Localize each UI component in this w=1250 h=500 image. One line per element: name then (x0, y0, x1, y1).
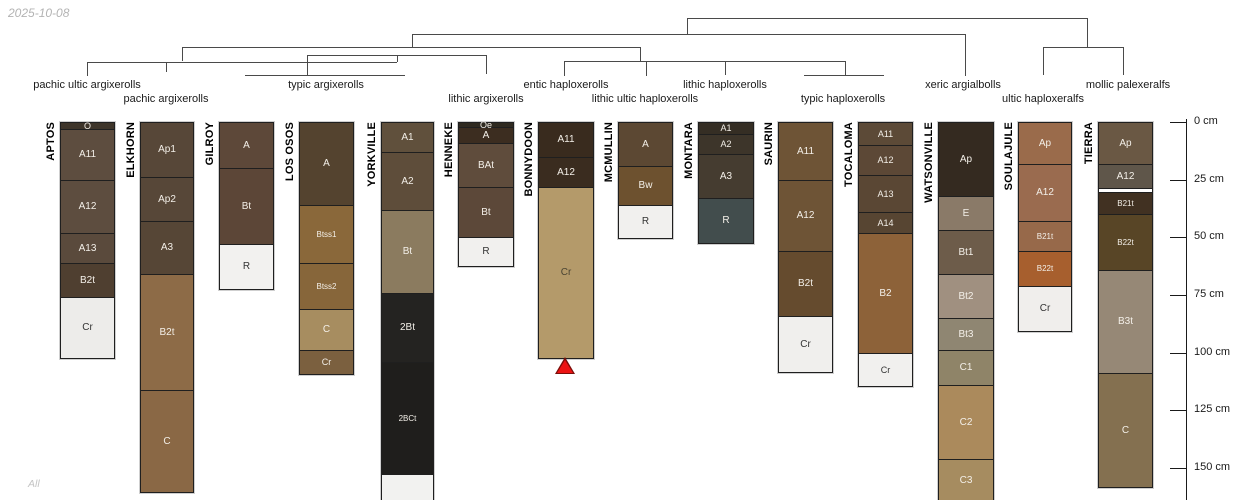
soil-column: OA11A12A13B2tCr (60, 122, 115, 359)
horizon-label: B22t (1037, 265, 1053, 273)
taxon-label: xeric argialbolls (925, 79, 1001, 91)
horizon-label: Ap2 (158, 195, 176, 205)
horizon-segment: B21t (1019, 222, 1071, 252)
soil-column: ABtR (219, 122, 274, 290)
soil-column-title: BONNYDOON (523, 122, 538, 242)
horizon-segment: A13 (859, 176, 912, 213)
soil-column-title: SOULAJULE (1003, 122, 1018, 242)
horizon-label: 2BCt (399, 415, 417, 423)
soil-column: A1A2Bt2Bt2BCt (381, 122, 434, 500)
horizon-segment: C2 (939, 386, 993, 460)
soil-column-title: MONTARA (683, 122, 698, 242)
dendrogram-line (87, 62, 88, 77)
horizon-segment: 2BCt (382, 363, 433, 475)
horizon-label: A3 (720, 172, 732, 182)
soil-column: ABwR (618, 122, 673, 239)
soil-column: ApA12B21tB22tCr (1018, 122, 1072, 332)
horizon-label: A12 (797, 211, 815, 221)
horizon-label: A (243, 141, 250, 151)
horizon-segment: Btss2 (300, 264, 353, 310)
depth-axis-tick (1170, 353, 1186, 354)
horizon-label: A11 (79, 150, 96, 160)
horizon-label: Cr (1040, 304, 1051, 314)
horizon-segment: Cr (300, 351, 353, 374)
dendrogram-line (564, 61, 565, 76)
horizon-segment: A3 (699, 155, 753, 199)
horizon-segment: A13 (61, 234, 114, 264)
horizon-segment: A12 (1019, 165, 1071, 222)
horizon-segment: C1 (939, 351, 993, 386)
horizon-label: A (483, 131, 490, 141)
horizon-label: A2 (720, 140, 731, 149)
horizon-segment: A (300, 123, 353, 206)
horizon-label: Cr (82, 323, 93, 333)
dendrogram-line (646, 61, 647, 76)
dendrogram-line (87, 62, 397, 63)
horizon-label: Bw (639, 181, 653, 191)
soil-column: A11A12Cr (538, 122, 594, 359)
horizon-label: Bt (403, 247, 412, 257)
horizon-segment: B22t (1019, 252, 1071, 287)
horizon-label: B2 (879, 289, 891, 299)
dendrogram-line (412, 34, 413, 48)
soil-column-title: WATSONVILLE (923, 122, 938, 242)
depth-axis-tick (1170, 468, 1186, 469)
dendrogram-line (412, 34, 965, 35)
horizon-segment: A14 (859, 213, 912, 234)
taxon-label: lithic ultic haploxerolls (592, 93, 698, 105)
soil-column: A1A2A3R (698, 122, 754, 244)
horizon-label: Ap (1039, 139, 1051, 149)
dendrogram-line (166, 62, 167, 73)
soil-column-title: TOCALOMA (843, 122, 858, 242)
horizon-segment: O (61, 123, 114, 130)
date-annotation: 2025-10-08 (8, 6, 69, 20)
taxon-label: pachic ultic argixerolls (33, 79, 141, 91)
horizon-label: A11 (878, 130, 893, 139)
dendrogram-line (486, 55, 487, 74)
horizon-label: B22t (1117, 239, 1133, 247)
depth-axis-tick-label: 125 cm (1194, 403, 1230, 415)
dendrogram-line (564, 61, 845, 62)
horizon-label: B2t (80, 276, 95, 286)
horizon-segment: Cr (779, 317, 832, 372)
horizon-label: A11 (557, 135, 574, 145)
horizon-segment: Bt (220, 169, 273, 245)
soil-column-title: YORKVILLE (366, 122, 381, 242)
horizon-label: Ap (960, 155, 972, 165)
horizon-segment: B22t (1099, 215, 1152, 271)
horizon-label: Bt3 (958, 330, 973, 340)
horizon-segment: R (459, 238, 513, 266)
horizon-segment: Ap (1019, 123, 1071, 165)
horizon-segment: B2t (61, 264, 114, 298)
horizon-label: C (1122, 426, 1129, 436)
horizon-segment: Bt3 (939, 319, 993, 351)
depth-axis-tick (1170, 122, 1186, 123)
depth-axis-tick-label: 50 cm (1194, 230, 1224, 242)
horizon-label: Cr (561, 268, 572, 278)
horizon-segment: A2 (699, 135, 753, 155)
horizon-segment: Bt1 (939, 231, 993, 275)
horizon-label: C (323, 325, 330, 335)
soil-column: ABtss1Btss2CCr (299, 122, 354, 375)
horizon-segment: A12 (539, 158, 593, 188)
horizon-segment: C3 (939, 460, 993, 500)
horizon-segment: C (300, 310, 353, 351)
horizon-label: Bt2 (958, 292, 973, 302)
taxon-label: typic argixerolls (288, 79, 364, 91)
horizon-label: A2 (401, 177, 413, 187)
horizon-segment: A12 (779, 181, 832, 252)
soil-column: A11A12A13A14B2Cr (858, 122, 913, 387)
horizon-segment: C (141, 391, 193, 492)
depth-axis-tick (1170, 180, 1186, 181)
horizon-label: BAt (478, 161, 494, 171)
horizon-segment: BAt (459, 144, 513, 188)
horizon-label: A3 (161, 243, 173, 253)
horizon-label: B2t (159, 328, 174, 338)
dendrogram-line (182, 47, 183, 61)
horizon-segment: Ap (939, 123, 993, 197)
horizon-label: C (163, 437, 170, 447)
dendrogram-line (1123, 47, 1124, 75)
soil-column-title: MCMULLIN (603, 122, 618, 242)
soil-column: ApA12B21tB22tB3tC (1098, 122, 1153, 488)
horizon-segment: A12 (1099, 165, 1152, 189)
horizon-label: E (963, 209, 970, 219)
horizon-segment: E (939, 197, 993, 231)
soil-column: ApEBt1Bt2Bt3C1C2C3 (938, 122, 994, 500)
taxon-label: ultic haploxeralfs (1002, 93, 1084, 105)
horizon-label: A (642, 140, 649, 150)
dendrogram-line (182, 47, 640, 48)
horizon-label: A12 (877, 156, 893, 165)
soil-column-title: TIERRA (1083, 122, 1098, 242)
horizon-segment: Cr (859, 354, 912, 386)
horizon-segment: Bt (382, 211, 433, 294)
horizon-label: A (323, 159, 330, 169)
horizon-segment: Ap1 (141, 123, 193, 178)
horizon-segment: R (220, 245, 273, 289)
depth-axis-tick (1170, 410, 1186, 411)
horizon-label: A12 (557, 168, 575, 178)
taxon-label: lithic haploxerolls (683, 79, 767, 91)
dendrogram-line (397, 55, 398, 62)
dendrogram-line (1087, 18, 1088, 47)
dendrogram-line (687, 18, 688, 34)
horizon-label: C1 (960, 363, 973, 373)
horizon-segment: R (699, 199, 753, 243)
soil-column-title: SAURIN (763, 122, 778, 242)
horizon-segment: A11 (859, 123, 912, 146)
horizon-segment: A1 (382, 123, 433, 153)
horizon-segment: B2t (779, 252, 832, 317)
horizon-segment: B21t (1099, 193, 1152, 215)
horizon-segment: Bt (459, 188, 513, 238)
dendrogram-line (845, 61, 846, 75)
horizon-segment: A3 (141, 222, 193, 275)
horizon-segment: A11 (779, 123, 832, 181)
dendrogram-line (725, 61, 726, 75)
horizon-label: A14 (877, 219, 893, 228)
horizon-label: A13 (877, 190, 893, 199)
horizon-label: B3t (1118, 317, 1133, 327)
horizon-segment: B2 (859, 234, 912, 354)
horizon-segment: R (619, 206, 672, 238)
depth-axis-line (1186, 119, 1187, 500)
truncation-marker-icon (557, 360, 573, 373)
horizon-label: Btss2 (316, 283, 336, 291)
horizon-label: Bt (242, 202, 251, 212)
taxon-label: lithic argixerolls (448, 93, 523, 105)
horizon-segment: Cr (1019, 287, 1071, 331)
horizon-segment: Ap (1099, 123, 1152, 165)
horizon-label: Ap (1119, 139, 1131, 149)
horizon-label: A12 (1117, 172, 1135, 182)
taxon-label: pachic argixerolls (124, 93, 209, 105)
dendrogram-line (1043, 47, 1123, 48)
soil-column: Ap1Ap2A3B2tC (140, 122, 194, 493)
taxon-label: entic haploxerolls (524, 79, 609, 91)
soil-profile-dendrogram-figure: 2025-10-08 pachic ultic argixerollspachi… (0, 0, 1250, 500)
horizon-label: Ap1 (158, 145, 176, 155)
depth-axis-tick-label: 25 cm (1194, 173, 1224, 185)
horizon-segment: A1 (699, 123, 753, 135)
horizon-label: Cr (322, 358, 332, 367)
depth-axis-tick-label: 150 cm (1194, 461, 1230, 473)
horizon-label: A12 (1036, 188, 1054, 198)
horizon-segment: Ap2 (141, 178, 193, 222)
horizon-segment: Btss1 (300, 206, 353, 264)
horizon-segment: A (220, 123, 273, 169)
horizon-segment: A11 (61, 130, 114, 181)
horizon-label: Cr (881, 366, 891, 375)
dendrogram-line (1043, 47, 1044, 75)
horizon-segment: B2t (141, 275, 193, 391)
soil-column: A11A12B2tCr (778, 122, 833, 373)
horizon-segment: A12 (61, 181, 114, 234)
footer-annotation: All (28, 478, 40, 490)
horizon-label: Bt (481, 208, 490, 218)
taxon-label: typic haploxerolls (801, 93, 885, 105)
horizon-label: 2Bt (400, 323, 415, 333)
horizon-label: B2t (798, 279, 813, 289)
horizon-label: A1 (401, 133, 413, 143)
dendrogram-line (804, 75, 884, 76)
horizon-segment: A12 (859, 146, 912, 176)
horizon-segment: A11 (539, 123, 593, 158)
horizon-segment: A2 (382, 153, 433, 211)
horizon-label: C3 (960, 476, 973, 486)
horizon-label: R (482, 247, 489, 257)
depth-axis-tick (1170, 295, 1186, 296)
dendrogram-line (687, 18, 1087, 19)
horizon-segment: C (1099, 374, 1152, 487)
dendrogram-line (965, 34, 966, 77)
horizon-label: R (243, 262, 250, 272)
horizon-segment: Cr (539, 188, 593, 358)
horizon-label: A1 (720, 124, 731, 133)
horizon-segment: A (459, 128, 513, 144)
dendrogram-line (307, 55, 308, 75)
horizon-label: B21t (1037, 233, 1053, 241)
dendrogram-line (640, 47, 641, 61)
horizon-label: A12 (79, 202, 97, 212)
horizon-label: R (642, 217, 649, 227)
soil-column: OeABAtBtR (458, 122, 514, 267)
soil-column-title: GILROY (204, 122, 219, 242)
horizon-segment: B3t (1099, 271, 1152, 374)
horizon-segment: A (619, 123, 672, 167)
depth-axis-tick (1170, 237, 1186, 238)
horizon-label: C2 (960, 418, 973, 428)
horizon-label: A13 (79, 244, 97, 254)
horizon-label: B21t (1117, 200, 1133, 208)
horizon-label: Cr (800, 340, 811, 350)
horizon-label: Btss1 (316, 231, 336, 239)
soil-column-title: HENNEKE (443, 122, 458, 242)
horizon-label: R (722, 216, 729, 226)
horizon-segment: Cr (61, 298, 114, 358)
horizon-segment: Bt2 (939, 275, 993, 319)
soil-column-title: LOS OSOS (284, 122, 299, 242)
horizon-label: A11 (797, 147, 814, 157)
horizon-label: Bt1 (958, 248, 973, 258)
soil-column-title: APTOS (45, 122, 60, 242)
depth-axis-tick-label: 75 cm (1194, 288, 1224, 300)
horizon-segment: Bw (619, 167, 672, 206)
horizon-segment: 2Bt (382, 294, 433, 363)
horizon-segment (382, 475, 433, 500)
taxon-label: mollic palexeralfs (1086, 79, 1170, 91)
soil-column-title: ELKHORN (125, 122, 140, 242)
depth-axis-tick-label: 100 cm (1194, 346, 1230, 358)
dendrogram-line (245, 75, 405, 76)
depth-axis-tick-label: 0 cm (1194, 115, 1218, 127)
